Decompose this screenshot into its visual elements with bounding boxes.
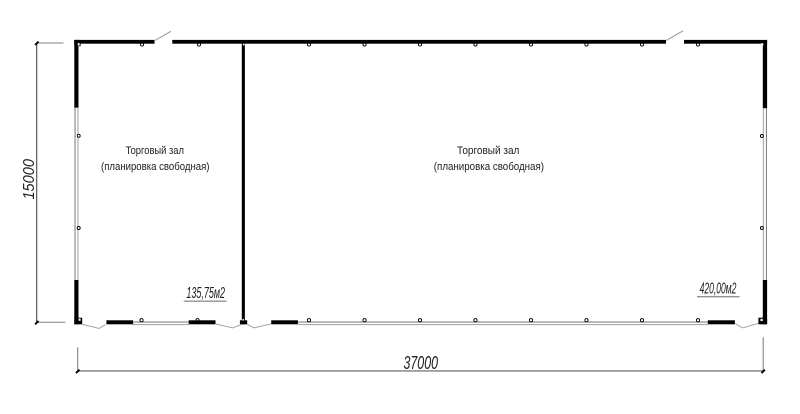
svg-text:37000: 37000 bbox=[404, 352, 439, 373]
svg-text:15000: 15000 bbox=[21, 159, 38, 200]
svg-text:Торговый зал: Торговый зал bbox=[126, 145, 184, 157]
svg-text:420,00м2: 420,00м2 bbox=[700, 281, 737, 298]
svg-text:135,75м2: 135,75м2 bbox=[186, 285, 225, 302]
svg-text:Торговый зал: Торговый зал bbox=[457, 145, 519, 157]
svg-text:(планировка свободная): (планировка свободная) bbox=[101, 161, 210, 173]
svg-text:(планировка свободная): (планировка свободная) bbox=[434, 161, 544, 173]
